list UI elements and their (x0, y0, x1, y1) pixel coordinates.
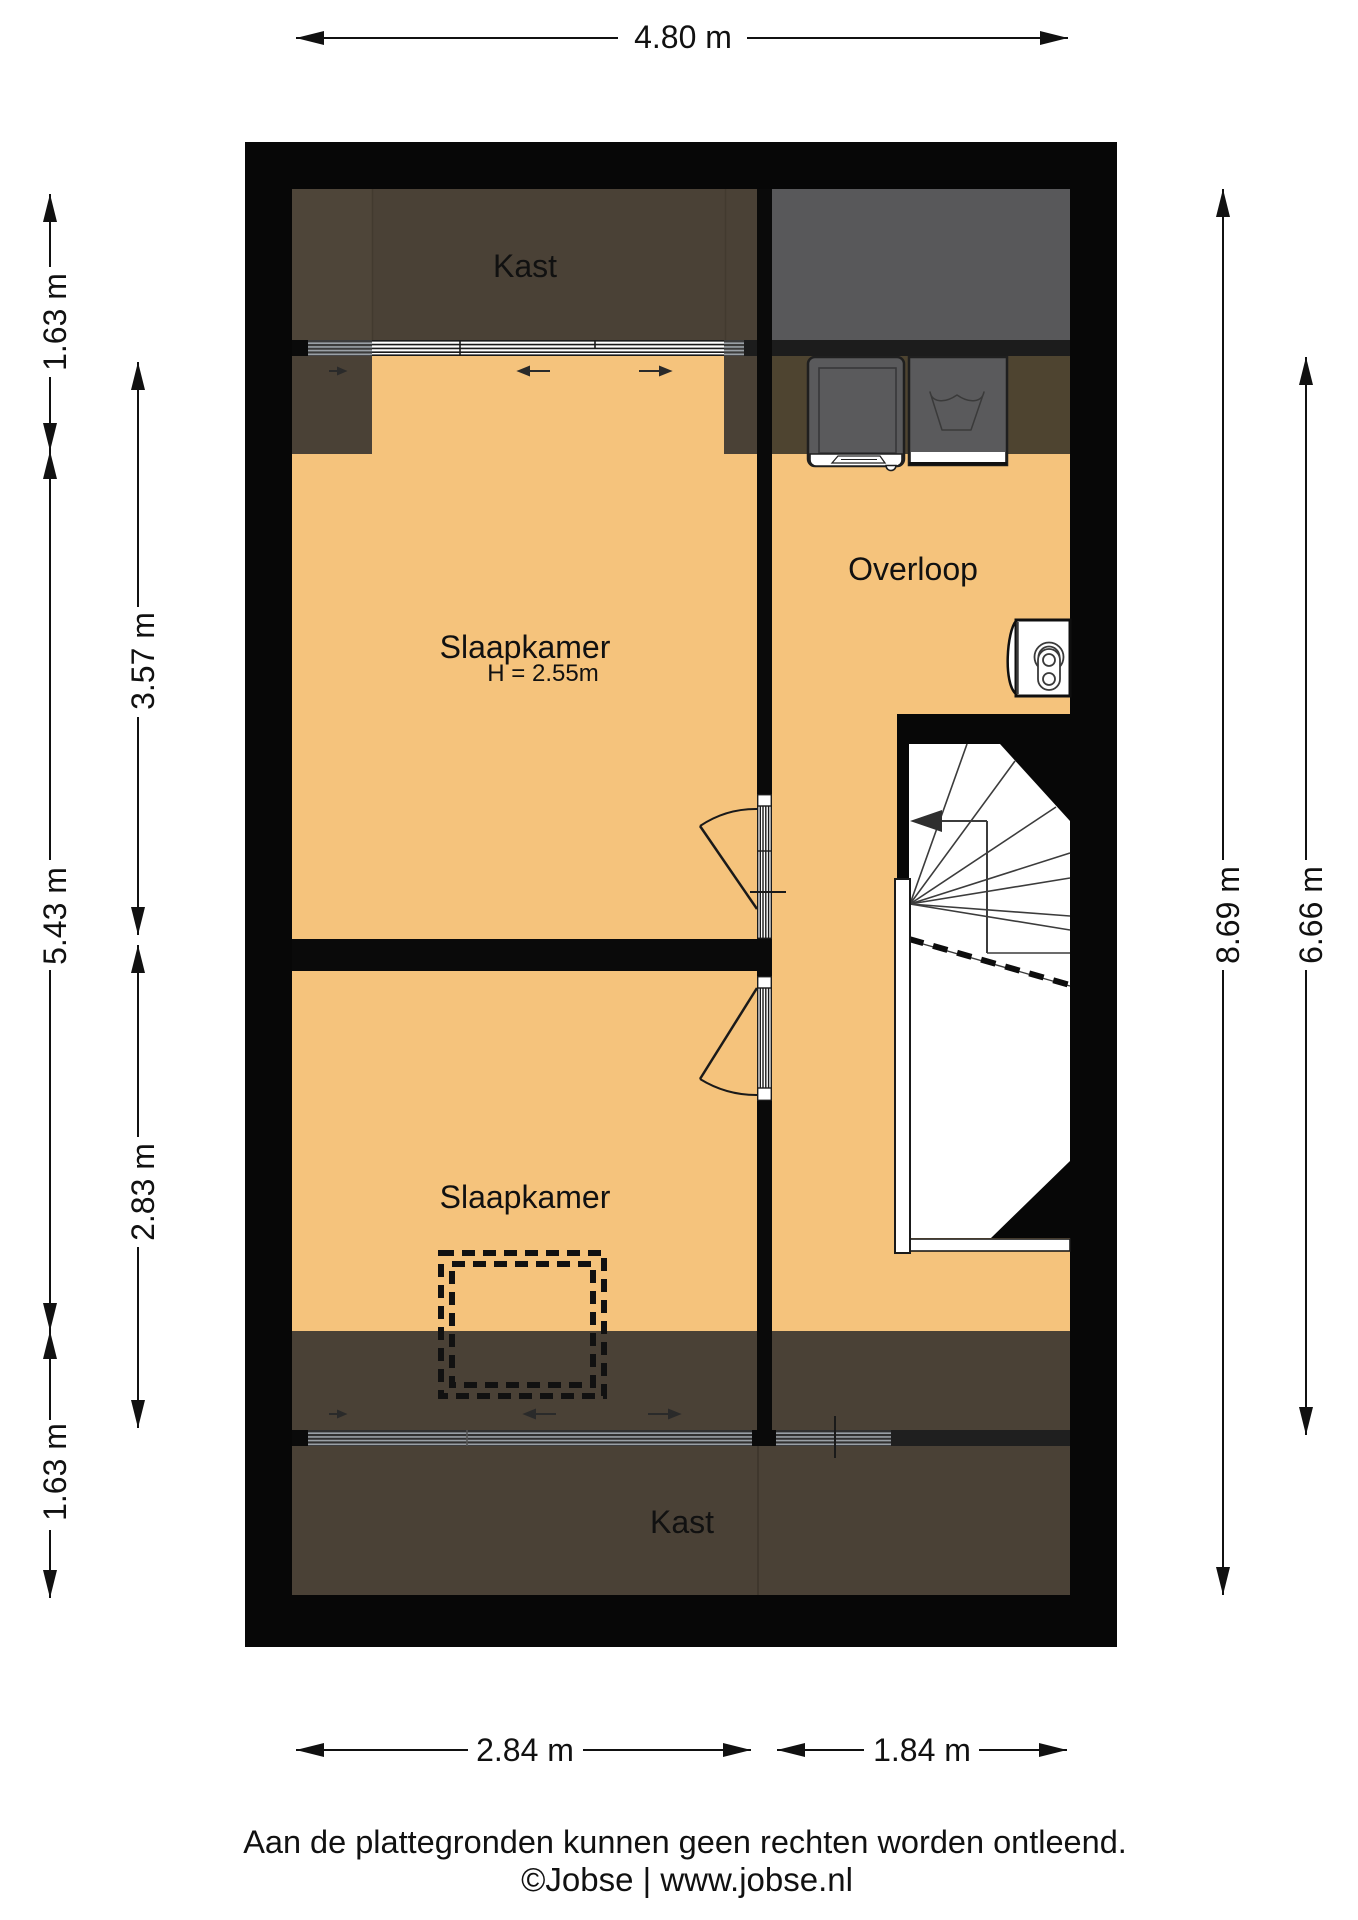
svg-text:5.43 m: 5.43 m (37, 867, 73, 965)
svg-text:©Jobse | www.jobse.nl: ©Jobse | www.jobse.nl (521, 1861, 853, 1898)
svg-text:Kast: Kast (650, 1504, 714, 1540)
svg-text:6.66 m: 6.66 m (1293, 866, 1329, 964)
svg-text:1.63 m: 1.63 m (37, 1423, 73, 1521)
svg-text:Overloop: Overloop (848, 551, 978, 587)
svg-text:8.69 m: 8.69 m (1210, 866, 1246, 964)
svg-text:Kast: Kast (493, 248, 557, 284)
svg-text:2.84 m: 2.84 m (476, 1732, 574, 1768)
svg-text:H = 2.55m: H = 2.55m (487, 660, 598, 687)
svg-text:1.63 m: 1.63 m (37, 273, 73, 371)
svg-text:2.83 m: 2.83 m (125, 1143, 161, 1241)
svg-text:4.80 m: 4.80 m (634, 19, 732, 55)
svg-text:Slaapkamer: Slaapkamer (440, 1179, 611, 1215)
svg-text:Aan de plattegronden kunnen ge: Aan de plattegronden kunnen geen rechten… (243, 1824, 1127, 1860)
svg-text:3.57 m: 3.57 m (125, 612, 161, 710)
svg-text:1.84 m: 1.84 m (873, 1732, 971, 1768)
